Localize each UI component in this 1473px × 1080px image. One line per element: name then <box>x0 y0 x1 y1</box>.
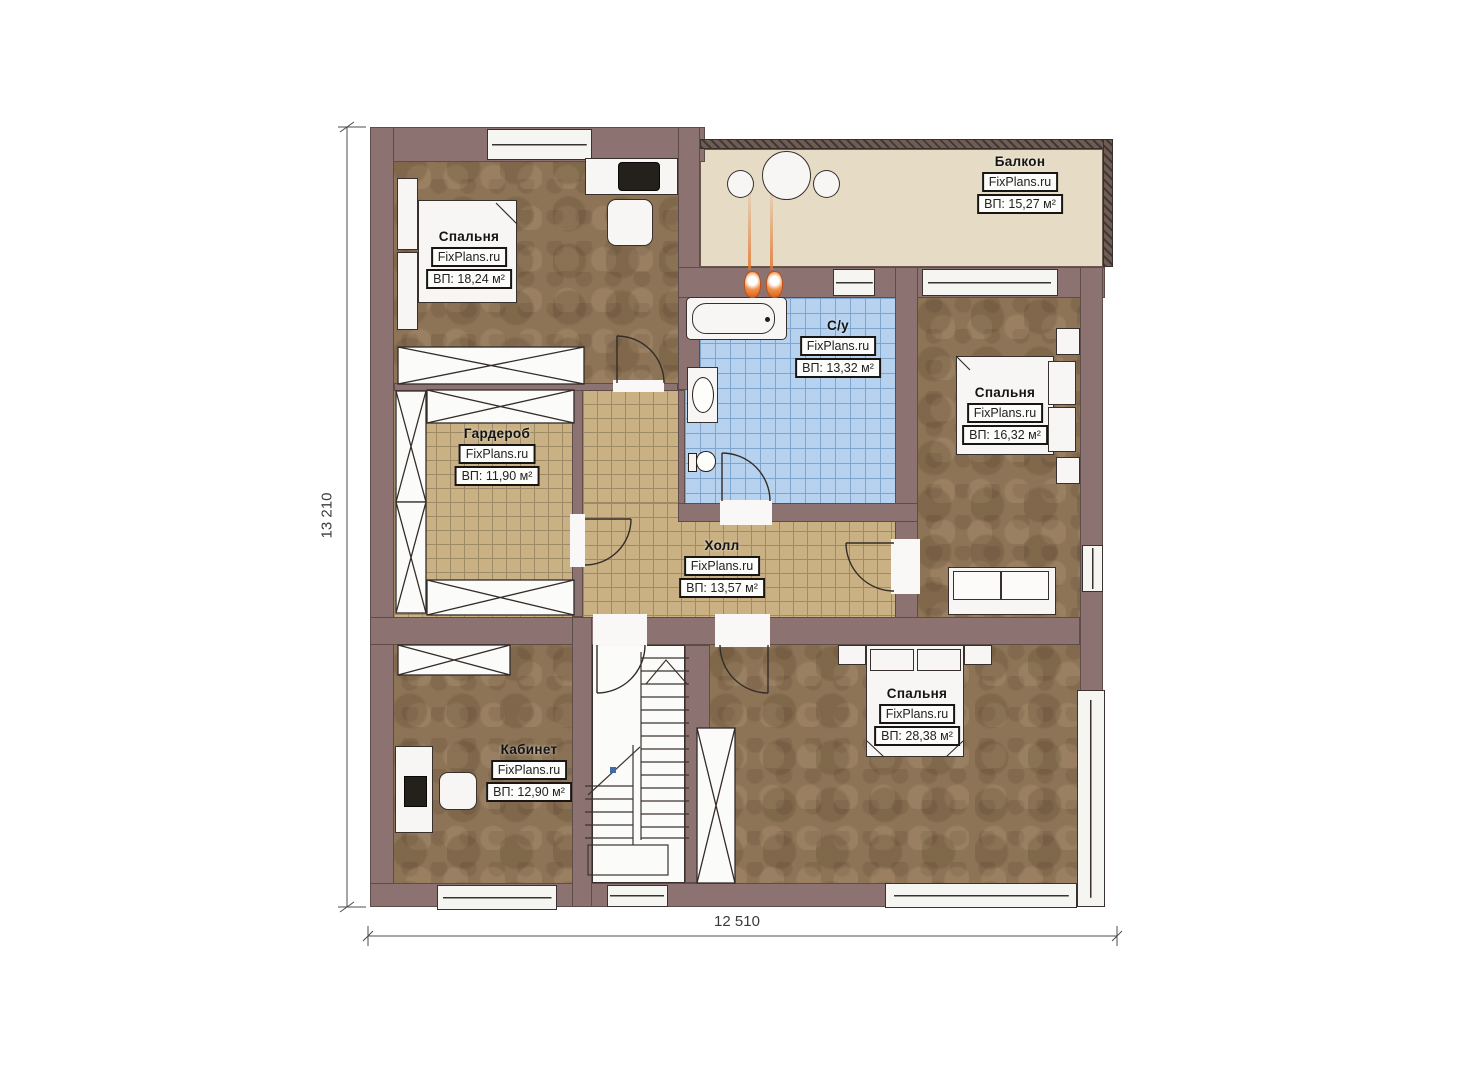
room-area: ВП: 11,90 м² <box>455 466 540 486</box>
floor-hall-corridor <box>583 390 678 517</box>
floor-wardrobe <box>394 390 572 617</box>
floor-plan-canvas: Спальня FixPlans.ru ВП: 18,24 м² Балкон … <box>0 0 1473 1080</box>
nightstand <box>1056 457 1080 484</box>
sink-basin <box>692 377 714 413</box>
room-label-bedroom-bottom: Спальня FixPlans.ru ВП: 28,38 м² <box>874 686 960 746</box>
wall-office-right <box>572 617 592 907</box>
room-area: ВП: 13,57 м² <box>679 578 765 598</box>
wall-left <box>370 127 394 907</box>
door-opening-stairwell <box>593 614 647 647</box>
room-label-office: Кабинет FixPlans.ru ВП: 12,90 м² <box>486 742 572 802</box>
sofa-seat <box>953 571 1001 600</box>
bathtub <box>686 297 787 340</box>
bed-pillow <box>397 178 418 250</box>
wall-right <box>1080 267 1103 695</box>
balcony-chair <box>727 170 754 198</box>
chair-bedroomTL <box>607 199 653 246</box>
sofa <box>948 567 1056 615</box>
window-office-bottom <box>437 885 557 910</box>
room-label-bedroom-top-left: Спальня FixPlans.ru ВП: 18,24 м² <box>426 229 512 289</box>
door-opening-bedroomR <box>891 539 920 594</box>
room-area: ВП: 15,27 м² <box>977 194 1063 214</box>
door-opening-bedroomTL <box>613 380 664 392</box>
room-name: Балкон <box>995 154 1046 169</box>
dimension-width-label: 12 510 <box>697 913 777 930</box>
room-name: Спальня <box>439 229 499 244</box>
door-opening-wardrobe <box>570 514 585 567</box>
room-area: ВП: 13,32 м² <box>795 358 881 378</box>
room-area: ВП: 16,32 м² <box>962 425 1048 445</box>
watermark-badge: FixPlans.ru <box>459 444 536 464</box>
room-label-bathroom: С/у FixPlans.ru ВП: 13,32 м² <box>795 318 881 378</box>
balcony-chair <box>813 170 840 198</box>
room-area: ВП: 28,38 м² <box>874 726 960 746</box>
floor-stairwell <box>592 645 685 883</box>
window-stairs-bottom <box>607 885 668 907</box>
room-name: С/у <box>827 318 849 333</box>
watermark-badge: FixPlans.ru <box>431 247 508 267</box>
window-bathroom-balcony <box>833 269 875 296</box>
room-label-hall: Холл FixPlans.ru ВП: 13,57 м² <box>679 538 765 598</box>
candle-icon <box>766 271 783 298</box>
bed-pillow <box>870 649 914 671</box>
dimension-height-label: 13 210 <box>319 476 336 556</box>
watermark-badge: FixPlans.ru <box>879 704 956 724</box>
nightstand <box>964 645 992 665</box>
door-opening-bedroomB <box>715 614 770 647</box>
watermark-badge: FixPlans.ru <box>491 760 568 780</box>
bed-pillow <box>917 649 961 671</box>
balcony-table <box>762 151 811 200</box>
room-name: Спальня <box>975 385 1035 400</box>
room-name: Холл <box>704 538 739 553</box>
sofa-seat <box>1001 571 1049 600</box>
room-area: ВП: 18,24 м² <box>426 269 512 289</box>
room-label-bedroom-right: Спальня FixPlans.ru ВП: 16,32 м² <box>962 385 1048 445</box>
window-panoramic-bottom <box>885 883 1077 908</box>
toilet <box>688 449 718 476</box>
door-opening-bathroom <box>720 500 772 525</box>
watermark-badge: FixPlans.ru <box>967 403 1044 423</box>
bed-pillow <box>397 252 418 330</box>
room-name: Кабинет <box>501 742 558 757</box>
toilet-bowl <box>696 451 716 472</box>
balcony-rail-right <box>1103 139 1113 267</box>
window-bedroomR-right <box>1082 545 1103 592</box>
room-area: ВП: 12,90 м² <box>486 782 572 802</box>
room-label-wardrobe: Гардероб FixPlans.ru ВП: 11,90 м² <box>455 426 540 486</box>
watermark-badge: FixPlans.ru <box>684 556 761 576</box>
balcony-rail-top <box>700 139 1113 149</box>
nightstand <box>1056 328 1080 355</box>
wall-bedroomTL-right <box>678 127 700 390</box>
watermark-badge: FixPlans.ru <box>800 336 877 356</box>
room-name: Спальня <box>887 686 947 701</box>
room-name: Гардероб <box>464 426 530 441</box>
bed-pillow <box>1048 361 1076 405</box>
window-bedroomR-balcony <box>922 269 1058 296</box>
candle-icon <box>744 271 761 298</box>
watermark-badge: FixPlans.ru <box>982 172 1059 192</box>
window-bedroomTL-top <box>487 129 592 160</box>
computer-icon <box>404 776 427 807</box>
nightstand <box>838 645 866 665</box>
window-panoramic-right <box>1077 690 1105 907</box>
wall-stair-right <box>685 645 710 883</box>
printer-icon <box>618 162 660 191</box>
bed-pillow <box>1048 407 1076 452</box>
wall-wardrobe-right <box>572 390 583 617</box>
wall-bathroom-bottom <box>678 503 918 522</box>
chair-office <box>439 772 477 810</box>
sink <box>687 367 718 423</box>
room-label-balcony: Балкон FixPlans.ru ВП: 15,27 м² <box>977 154 1063 214</box>
